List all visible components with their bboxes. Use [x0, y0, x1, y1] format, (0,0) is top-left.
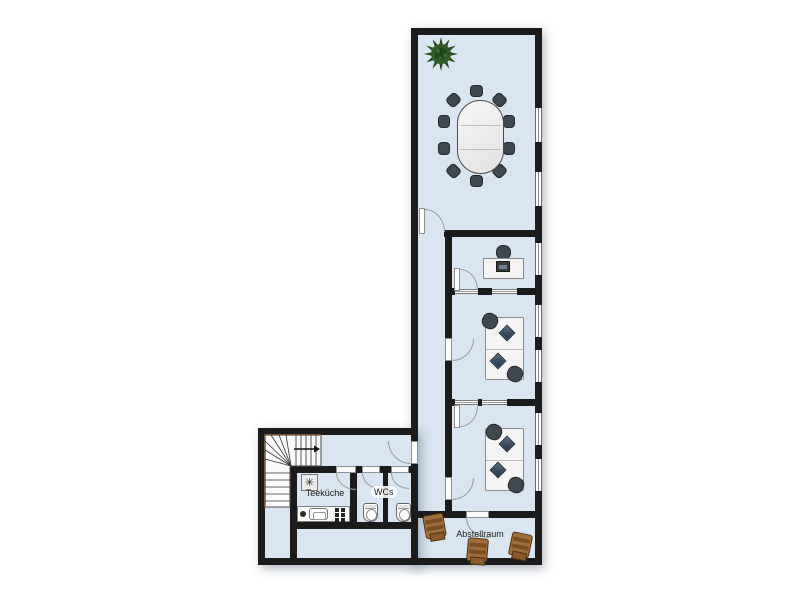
office3-transom-window [482, 400, 507, 405]
office1-transom-window [492, 289, 517, 294]
conference-chair [503, 115, 515, 128]
office2-office3-wall-c [507, 399, 535, 406]
window-office2-2 [535, 350, 542, 382]
staircase [263, 431, 323, 511]
window-office3-1 [535, 413, 542, 445]
kitchen-sink-icon [309, 508, 328, 520]
plant-icon [424, 37, 458, 71]
conference-chair [438, 115, 450, 128]
corridor-wall-2 [445, 361, 452, 477]
storage-door-leaf [466, 511, 489, 518]
stacked-chair-icon [466, 537, 489, 563]
office3-west-door-leaf [445, 477, 452, 500]
office1-office2-wall-c [517, 288, 535, 295]
wc-north-wall-a [380, 466, 391, 473]
wc2-door-leaf [391, 466, 409, 473]
conference-room-south-wall [444, 230, 535, 237]
conference-chair [470, 85, 483, 97]
kitchen-tap-icon [300, 511, 306, 517]
window-office2-1 [535, 305, 542, 337]
wc-north-wall-b [409, 466, 413, 473]
office1-laptop [496, 261, 510, 272]
conference-table [457, 100, 504, 174]
toilet-icon [363, 503, 378, 522]
wc-label: WCs [371, 486, 397, 498]
outer-wall-bottom [258, 558, 542, 565]
outer-wall-left-upper [411, 28, 418, 441]
office1-office2-wall-b [478, 288, 492, 295]
stacked-chair-icon [422, 512, 447, 539]
kitchen-door-leaf [336, 466, 356, 473]
corridor-link-door-leaf [411, 441, 418, 464]
corridor-wall-1 [445, 237, 452, 338]
conference-chair [438, 142, 450, 155]
window-office1 [535, 243, 542, 275]
kitchen-label: Teeküche [299, 488, 351, 498]
conference-chair [503, 142, 515, 155]
toilet-icon [396, 503, 411, 522]
floor-plan: ✳ Teeküche WCs Abstellraum [0, 0, 800, 600]
wc-stall-divider-wall [383, 473, 388, 529]
wc1-door-leaf [362, 466, 380, 473]
window-office3-2 [535, 459, 542, 491]
stove-burners-icon [335, 508, 339, 512]
conference-chair [470, 175, 483, 187]
window-conference-2 [535, 172, 542, 206]
window-conference-1 [535, 108, 542, 142]
storage-north-wall-b [489, 511, 535, 518]
office2-door-leaf [445, 338, 452, 361]
outer-wall-top [411, 28, 542, 35]
